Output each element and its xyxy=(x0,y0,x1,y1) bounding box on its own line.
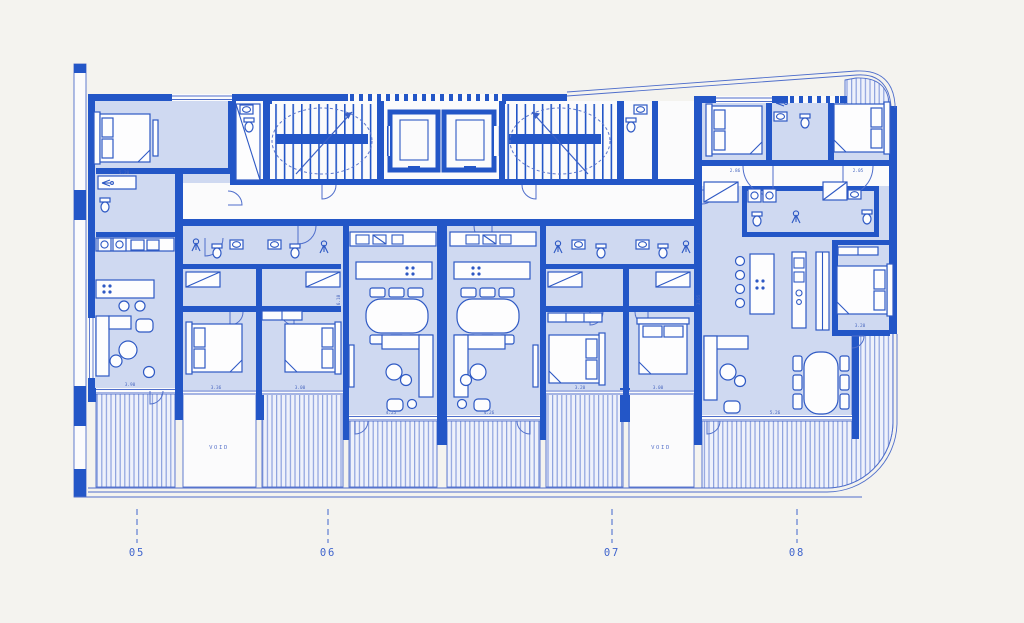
kitchen-counter xyxy=(350,232,436,246)
closet-icon xyxy=(823,182,847,200)
balcony-unit-06-b xyxy=(349,421,437,487)
kitchen-island-icon xyxy=(454,262,530,279)
sink-icon xyxy=(774,112,787,121)
dimension-label: 3.00 xyxy=(295,385,306,391)
dimension-label: 5.20 xyxy=(119,170,130,176)
elevator-shaft-left xyxy=(390,112,438,170)
closet-icon xyxy=(548,272,582,287)
sink-icon xyxy=(848,190,861,199)
wardrobe-icon xyxy=(838,247,878,255)
toilet-icon xyxy=(212,244,222,258)
balcony-unit-05 xyxy=(96,394,175,487)
stair-core-left xyxy=(270,104,377,179)
washer-icon xyxy=(748,189,761,202)
bed-icon xyxy=(186,322,242,374)
dimension-label: 2.05 xyxy=(853,168,864,174)
toilet-icon xyxy=(800,114,810,128)
dimension-label: 5.26 xyxy=(770,410,781,416)
sink-icon xyxy=(636,240,649,249)
bed-icon xyxy=(837,264,893,316)
bed-icon xyxy=(285,322,341,374)
closet-icon xyxy=(656,272,690,287)
void-area-2 xyxy=(629,394,694,487)
bed-icon xyxy=(94,112,150,164)
toilet-icon xyxy=(244,118,254,132)
party-wall xyxy=(74,64,86,497)
elevator-shaft-right xyxy=(444,112,494,170)
dining-table-icon xyxy=(793,352,849,414)
stair-core-right xyxy=(505,104,613,179)
kitchen-island-icon xyxy=(356,262,432,279)
closet-icon xyxy=(704,182,738,202)
void-label: VOID xyxy=(209,445,229,451)
balcony-unit-07-a xyxy=(447,421,540,487)
unit-label-07[interactable]: 07 xyxy=(604,547,620,559)
dimension-label: 6.10 xyxy=(336,294,342,305)
void-area-1 xyxy=(183,394,256,487)
toilet-icon xyxy=(626,118,636,132)
floor-plan: 5.20 3.90 3.36 3.00 4.25 4.26 3.20 3.00 … xyxy=(0,0,1024,623)
bed-icon xyxy=(637,318,689,374)
dimension-label: 3.05 xyxy=(696,294,702,305)
kitchen-counter xyxy=(450,232,536,246)
dimension-label: 4.26 xyxy=(484,410,495,416)
unit-label-08[interactable]: 08 xyxy=(789,547,805,559)
toilet-icon xyxy=(862,210,872,224)
unit-label-06[interactable]: 06 xyxy=(320,547,336,559)
washer-icon xyxy=(763,189,776,202)
unit-label-05[interactable]: 05 xyxy=(129,547,145,559)
sink-icon xyxy=(634,105,647,114)
bed-icon xyxy=(834,102,890,154)
closet-icon xyxy=(236,104,260,180)
floor-plan-canvas: 5.20 3.90 3.36 3.00 4.25 4.26 3.20 3.00 … xyxy=(0,0,1024,623)
dimension-label: 3.90 xyxy=(125,382,136,388)
sink-icon xyxy=(230,240,243,249)
toilet-icon xyxy=(100,198,110,212)
closet-icon xyxy=(306,272,340,287)
elevator-shafts xyxy=(384,112,500,171)
balcony-unit-07-b xyxy=(546,394,623,487)
bed-icon xyxy=(549,333,605,385)
void-label: VOID xyxy=(651,445,671,451)
dimension-label: 3.20 xyxy=(855,323,866,329)
balcony-unit-06-a xyxy=(262,394,343,487)
toilet-icon xyxy=(752,212,762,226)
dimension-label: 2.86 xyxy=(730,168,741,174)
bed-icon xyxy=(706,104,762,156)
dimension-label: 3.20 xyxy=(575,385,586,391)
terrace-top-right xyxy=(845,78,889,106)
sink-icon xyxy=(572,240,585,249)
toilet-icon xyxy=(596,244,606,258)
dimension-label: 4.25 xyxy=(386,410,397,416)
washer-icon xyxy=(113,238,126,251)
toilet-icon xyxy=(658,244,668,258)
sink-icon xyxy=(240,105,253,114)
dimension-label: 3.36 xyxy=(211,385,222,391)
toilet-icon xyxy=(290,244,300,258)
closet-icon xyxy=(186,272,220,287)
washer-icon xyxy=(98,238,111,251)
wardrobe-icon xyxy=(262,311,302,320)
unit-leaders xyxy=(137,509,797,543)
wardrobe-icon xyxy=(548,313,602,322)
sink-icon xyxy=(268,240,281,249)
dimension-label: 3.00 xyxy=(653,385,664,391)
